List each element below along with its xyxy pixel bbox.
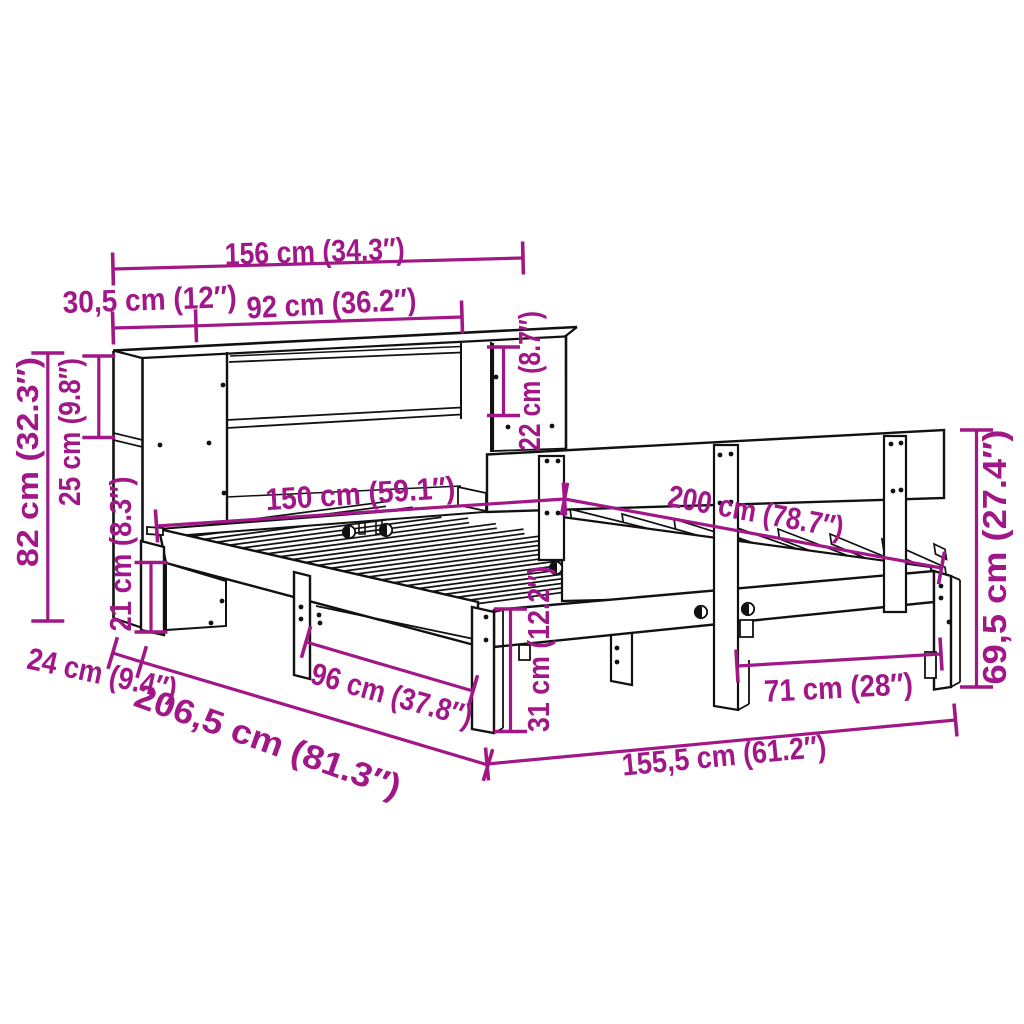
svg-text:30,5 cm (12″): 30,5 cm (12″) — [62, 279, 237, 320]
svg-text:25 cm (9.8″): 25 cm (9.8″) — [52, 358, 87, 506]
svg-text:69,5 cm (27.4″): 69,5 cm (27.4″) — [976, 430, 1013, 685]
svg-text:22 cm (8.7″): 22 cm (8.7″) — [512, 311, 547, 451]
svg-text:156 cm (34.3″): 156 cm (34.3″) — [224, 231, 405, 272]
svg-text:82 cm (32.3″): 82 cm (32.3″) — [10, 357, 45, 567]
svg-text:21 cm (8.3″): 21 cm (8.3″) — [103, 477, 138, 632]
svg-text:31 cm (12.2″): 31 cm (12.2″) — [521, 566, 556, 732]
